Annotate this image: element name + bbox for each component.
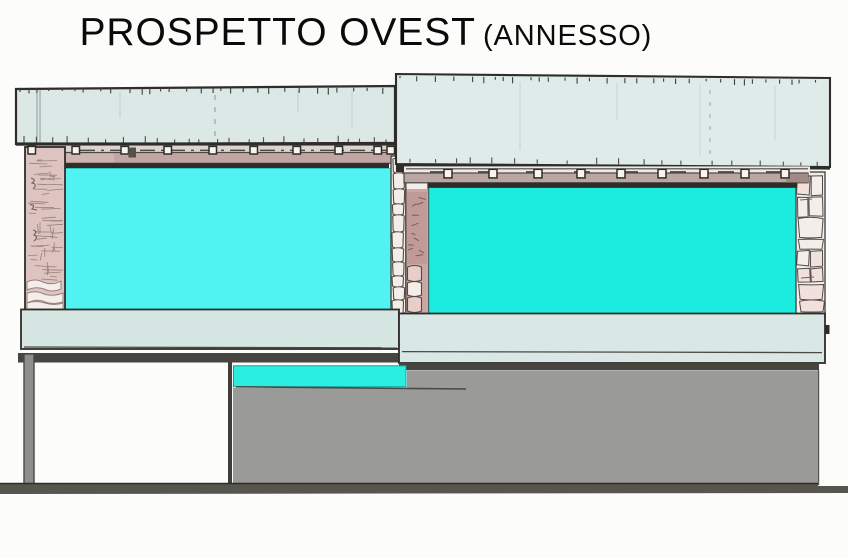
svg-text:PROSPETTO OVEST: PROSPETTO OVEST xyxy=(80,11,476,54)
svg-text:(ANNESSO): (ANNESSO) xyxy=(483,20,652,52)
